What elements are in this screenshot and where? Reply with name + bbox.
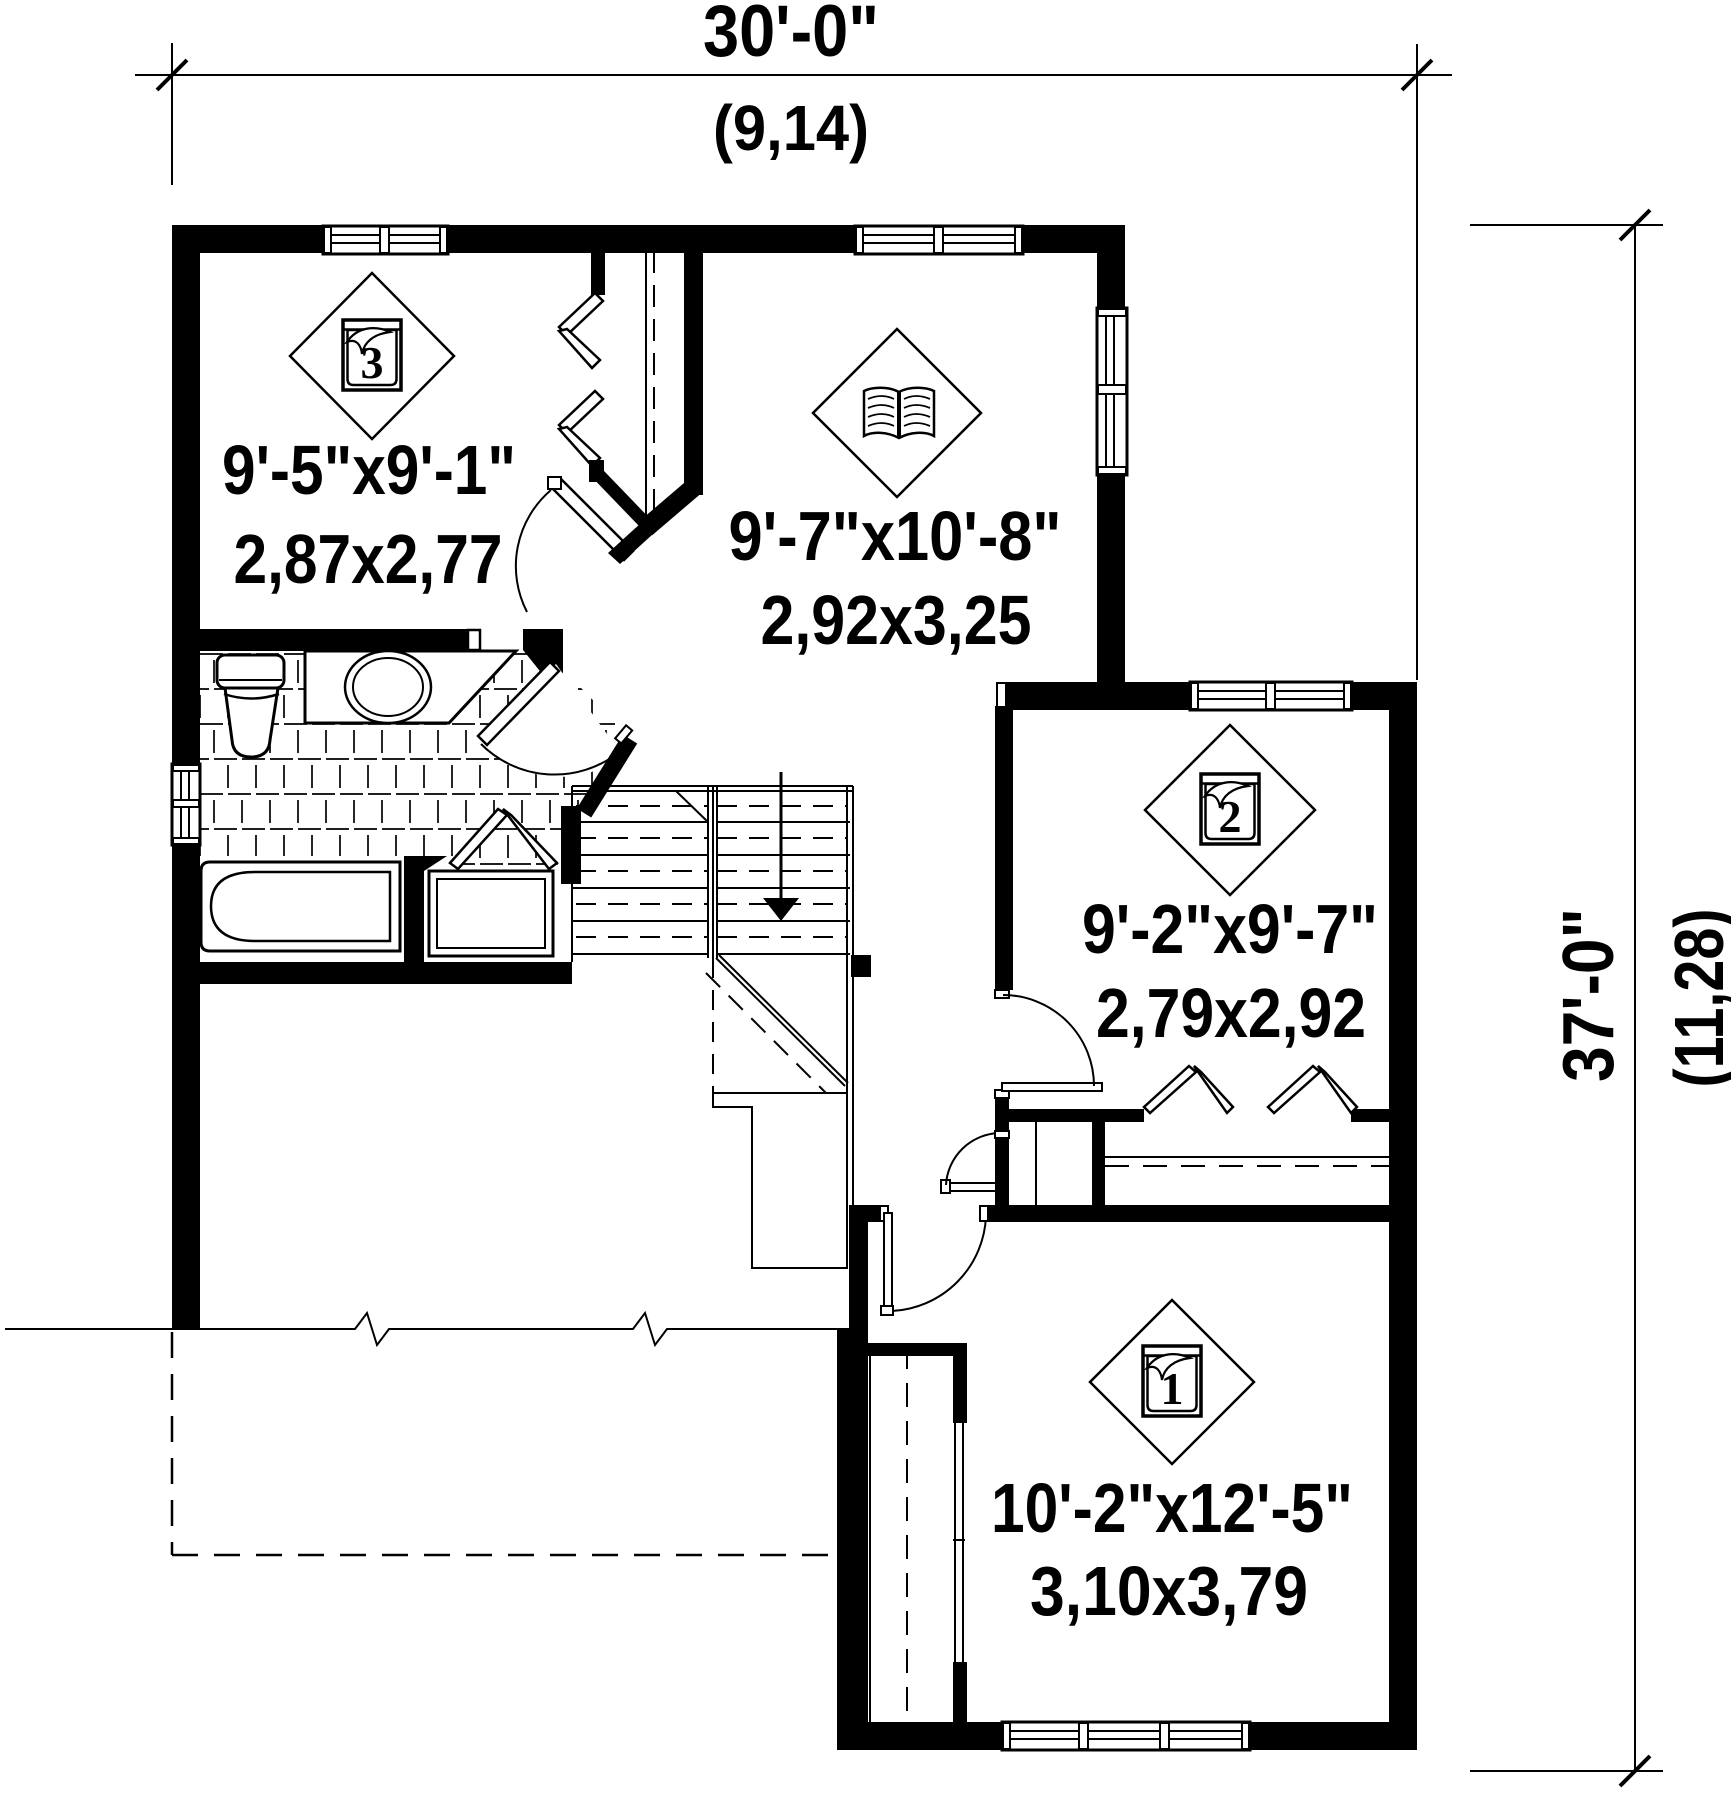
svg-text:2: 2 xyxy=(1219,791,1242,842)
svg-text:2,92x3,25: 2,92x3,25 xyxy=(761,581,1032,659)
svg-text:(9,14): (9,14) xyxy=(713,92,869,164)
svg-text:3,10x3,79: 3,10x3,79 xyxy=(1030,1552,1308,1630)
svg-text:2,79x2,92: 2,79x2,92 xyxy=(1096,974,1366,1052)
svg-text:9'-5"x9'-1": 9'-5"x9'-1" xyxy=(222,431,516,509)
svg-text:1: 1 xyxy=(1161,1363,1184,1414)
svg-text:10'-2"x12'-5": 10'-2"x12'-5" xyxy=(991,1469,1353,1547)
svg-text:2,87x2,77: 2,87x2,77 xyxy=(234,520,503,598)
svg-text:30'-0": 30'-0" xyxy=(703,0,879,72)
svg-text:(11,28): (11,28) xyxy=(1660,909,1731,1088)
svg-text:37'-0": 37'-0" xyxy=(1549,908,1629,1082)
svg-text:9'-2"x9'-7": 9'-2"x9'-7" xyxy=(1082,890,1378,968)
svg-text:3: 3 xyxy=(361,337,384,388)
svg-text:9'-7"x10'-8": 9'-7"x10'-8" xyxy=(729,497,1062,575)
